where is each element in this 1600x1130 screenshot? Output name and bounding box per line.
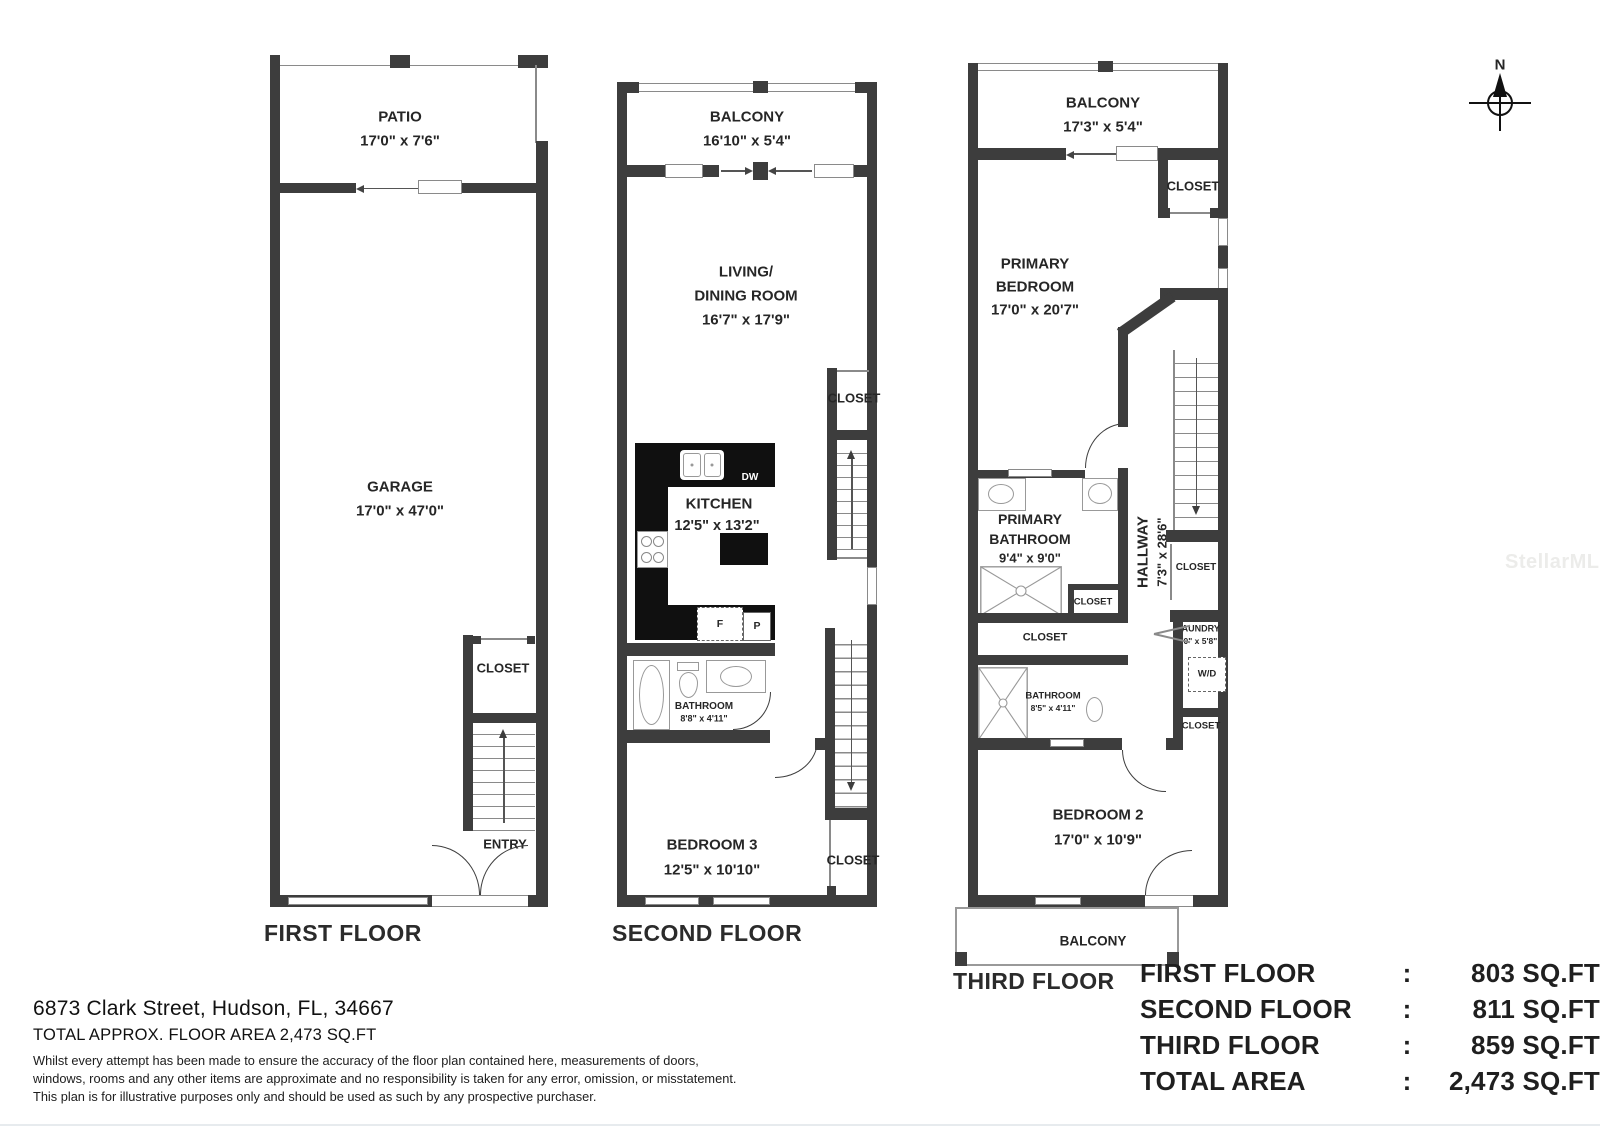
wall bbox=[968, 613, 1128, 623]
room-label-closet-top: CLOSET bbox=[1167, 180, 1220, 193]
area-summary-table: FIRST FLOOR : 803 SQ.FT SECOND FLOOR : 8… bbox=[1140, 958, 1600, 1097]
room-dims-garage: 17'0" x 47'0" bbox=[356, 504, 444, 519]
balcony-railing bbox=[617, 83, 877, 92]
bottom-divider bbox=[0, 1124, 1600, 1126]
room-label-bathroom: BATHROOM bbox=[675, 702, 733, 712]
burner bbox=[653, 552, 664, 563]
tub-oval bbox=[639, 665, 664, 725]
sink-icon bbox=[988, 484, 1014, 504]
door-arc bbox=[1122, 750, 1166, 792]
slide-arrow-line bbox=[776, 170, 812, 172]
disclaimer: Whilst every attempt has been made to en… bbox=[33, 1052, 736, 1106]
room-dims-balcony-top: 17'3" x 5'4" bbox=[1063, 120, 1143, 135]
pocket-door bbox=[1050, 739, 1084, 747]
room-label-bedroom2: BEDROOM 2 bbox=[1053, 808, 1144, 823]
wall bbox=[1183, 708, 1228, 717]
window bbox=[1035, 897, 1081, 905]
wall bbox=[463, 635, 473, 831]
compass-north-arrow-icon bbox=[1493, 73, 1507, 97]
summary-label: FIRST FLOOR bbox=[1140, 958, 1392, 989]
bathtub-icon bbox=[633, 660, 670, 730]
summary-value: 2,473 SQ.FT bbox=[1422, 1066, 1600, 1097]
garage-door bbox=[288, 897, 428, 905]
caption-first-floor: FIRST FLOOR bbox=[264, 920, 422, 947]
wall bbox=[1098, 61, 1113, 72]
room-label-living: LIVING/ bbox=[719, 265, 773, 280]
door-arc bbox=[733, 692, 771, 730]
wall bbox=[815, 738, 825, 750]
wall bbox=[1158, 208, 1170, 218]
toilet-icon bbox=[677, 662, 699, 671]
dishwasher-label: DW bbox=[742, 473, 759, 483]
wall bbox=[978, 148, 1066, 160]
burner bbox=[641, 536, 652, 547]
stair-down-arrow-icon bbox=[847, 782, 855, 791]
disclaimer-line: Whilst every attempt has been made to en… bbox=[33, 1052, 736, 1070]
wall bbox=[270, 55, 280, 907]
burner bbox=[641, 552, 652, 563]
caption-third-floor: THIRD FLOOR bbox=[953, 968, 1115, 995]
footer-block: 6873 Clark Street, Hudson, FL, 34667 TOT… bbox=[33, 997, 736, 1106]
stair-up-arrow-icon bbox=[847, 450, 855, 459]
room-label-patio: PATIO bbox=[378, 110, 422, 125]
room-dims-living: 16'7" x 17'9" bbox=[702, 313, 790, 328]
room-dims-bathroom3: 8'5" x 4'11" bbox=[1031, 704, 1076, 713]
room-label-closet-stairs: CLOSET bbox=[1176, 563, 1217, 573]
disclaimer-line: windows, rooms and any other items are a… bbox=[33, 1070, 736, 1088]
wall bbox=[968, 655, 1128, 665]
sink-icon bbox=[720, 666, 752, 687]
second-floor-plan: BALCONY 16'10" x 5'4" LIVING/ DINING ROO… bbox=[617, 80, 877, 907]
room-dims-balcony: 16'10" x 5'4" bbox=[703, 134, 791, 149]
wall bbox=[869, 368, 877, 376]
toilet-bowl bbox=[679, 672, 698, 698]
window bbox=[814, 164, 854, 178]
property-address: 6873 Clark Street, Hudson, FL, 34667 bbox=[33, 997, 736, 1021]
slide-arrow-icon bbox=[356, 185, 364, 193]
pocket-door bbox=[1008, 469, 1052, 477]
fridge-label: F bbox=[717, 619, 723, 630]
summary-separator: : bbox=[1392, 1066, 1422, 1097]
shower-icon bbox=[980, 566, 1062, 616]
room-label-closet-upper: CLOSET bbox=[828, 392, 881, 405]
wall bbox=[280, 183, 356, 193]
wall bbox=[463, 713, 536, 723]
room-label-closet-lower: CLOSET bbox=[827, 854, 880, 867]
door-arc bbox=[1145, 850, 1192, 895]
summary-separator: : bbox=[1392, 1030, 1422, 1061]
sink-basin bbox=[704, 453, 722, 477]
slide-arrow-line bbox=[364, 188, 418, 190]
floor-plan-sheet: PATIO 17'0" x 7'6" GARAGE 17'0" x 47'0" … bbox=[0, 0, 1600, 1130]
wall bbox=[390, 55, 410, 68]
wall bbox=[1210, 208, 1218, 218]
stair-edge bbox=[1173, 350, 1175, 532]
wall bbox=[473, 636, 481, 644]
third-floor-plan: BALCONY 17'3" x 5'4" CLOSET PRIMARY BEDR… bbox=[952, 60, 1228, 972]
room-dims-bathroom: 8'8" x 4'11" bbox=[680, 715, 727, 724]
wall bbox=[627, 165, 665, 177]
summary-label: SECOND FLOOR bbox=[1140, 994, 1392, 1025]
wall bbox=[703, 165, 719, 177]
burner bbox=[653, 536, 664, 547]
slide-arrow-icon bbox=[1066, 151, 1074, 159]
room-label-bathroom3: BATHROOM bbox=[1025, 691, 1080, 701]
room-dims-primary-bedroom: 17'0" x 20'7" bbox=[991, 303, 1079, 318]
total-area-line: TOTAL APPROX. FLOOR AREA 2,473 SQ.FT bbox=[33, 1026, 736, 1045]
room-label-closet-lower: CLOSET bbox=[1182, 721, 1221, 731]
stair-rail bbox=[851, 459, 853, 549]
wall bbox=[825, 808, 877, 820]
wall bbox=[753, 162, 768, 180]
patio-edge bbox=[535, 65, 537, 143]
wall bbox=[867, 83, 877, 907]
room-dims-hallway: 7'3" x 28'6" bbox=[1156, 517, 1169, 586]
room-label-kitchen: KITCHEN bbox=[686, 497, 753, 512]
room-label-balcony-top: BALCONY bbox=[1066, 96, 1140, 111]
summary-separator: : bbox=[1392, 994, 1422, 1025]
stair-edge bbox=[837, 557, 867, 559]
room-dims-bedroom3: 12'5" x 10'10" bbox=[664, 863, 760, 878]
slide-arrow-icon bbox=[745, 167, 753, 175]
room-label-closet: CLOSET bbox=[477, 662, 530, 675]
wall bbox=[1068, 584, 1118, 590]
door-arc bbox=[432, 845, 480, 895]
closet-divider bbox=[1170, 544, 1172, 600]
washer-dryer-label: W/D bbox=[1198, 669, 1216, 679]
room-dims-primary-bathroom: 9'4" x 9'0" bbox=[999, 552, 1061, 565]
kitchen-sink-icon bbox=[680, 450, 724, 480]
slide-arrow-line bbox=[1074, 153, 1116, 155]
slide-arrow-icon bbox=[768, 167, 776, 175]
toilet-icon bbox=[1086, 697, 1103, 722]
wall bbox=[536, 141, 548, 907]
room-label-primary-bedroom: PRIMARY bbox=[1001, 257, 1070, 272]
disclaimer-line: This plan is for illustrative purposes o… bbox=[33, 1088, 736, 1106]
room-label-hallway: HALLWAY bbox=[1136, 516, 1151, 588]
door-arc bbox=[480, 845, 528, 895]
sliding-door-panel bbox=[418, 180, 462, 194]
wall bbox=[1166, 530, 1218, 542]
wall bbox=[1118, 327, 1128, 427]
closet-opening bbox=[473, 638, 535, 640]
wall bbox=[854, 165, 867, 177]
room-label-closet-inner: CLOSET bbox=[1074, 597, 1113, 607]
summary-value: 859 SQ.FT bbox=[1422, 1030, 1600, 1061]
stair-rail bbox=[1196, 358, 1198, 506]
balcony-door-opening bbox=[1145, 895, 1193, 907]
window bbox=[867, 567, 877, 605]
shower-icon bbox=[978, 667, 1028, 740]
room-dims-kitchen: 12'5" x 13'2" bbox=[674, 519, 759, 534]
sliding-door-panel bbox=[1116, 146, 1158, 161]
door-arc bbox=[775, 740, 818, 778]
wall bbox=[753, 81, 768, 93]
room-label-balcony: BALCONY bbox=[710, 110, 784, 125]
sink-icon bbox=[1088, 483, 1112, 504]
compass-north-label: N bbox=[1495, 58, 1506, 73]
wall bbox=[968, 63, 978, 907]
wall bbox=[825, 628, 835, 820]
room-dims-bedroom2: 17'0" x 10'9" bbox=[1054, 833, 1142, 848]
summary-value: 803 SQ.FT bbox=[1422, 958, 1600, 989]
window bbox=[665, 164, 703, 178]
room-label-garage: GARAGE bbox=[367, 480, 433, 495]
wall bbox=[1118, 468, 1128, 620]
wall bbox=[518, 55, 548, 68]
stair-rail bbox=[851, 640, 853, 784]
wall bbox=[1170, 610, 1228, 622]
room-label-primary-bathroom2: BATHROOM bbox=[989, 532, 1070, 546]
room-label-primary-bedroom2: BEDROOM bbox=[996, 280, 1074, 295]
first-floor-plan: PATIO 17'0" x 7'6" GARAGE 17'0" x 47'0" … bbox=[270, 53, 548, 907]
wall bbox=[627, 730, 770, 743]
entry-door-opening bbox=[432, 895, 528, 907]
stair-up-arrow-icon bbox=[499, 729, 507, 738]
window bbox=[645, 897, 699, 905]
kitchen-island bbox=[720, 533, 768, 565]
stove-icon bbox=[637, 531, 668, 568]
wall bbox=[955, 952, 967, 966]
caption-second-floor: SECOND FLOOR bbox=[612, 920, 802, 947]
stair-down-arrow-icon bbox=[1192, 506, 1200, 515]
wall bbox=[827, 430, 877, 440]
watermark: StellarMLS bbox=[1505, 551, 1600, 574]
pantry-label: P bbox=[753, 621, 760, 632]
room-label-living2: DINING ROOM bbox=[694, 289, 797, 304]
summary-value: 811 SQ.FT bbox=[1422, 994, 1600, 1025]
room-label-closet-mid: CLOSET bbox=[1023, 633, 1068, 644]
wall bbox=[617, 83, 627, 907]
room-label-balcony-bottom: BALCONY bbox=[1060, 934, 1127, 948]
room-label-primary-bathroom: PRIMARY bbox=[998, 512, 1062, 526]
summary-label: TOTAL AREA bbox=[1140, 1066, 1392, 1097]
sink-basin bbox=[683, 453, 701, 477]
wall bbox=[462, 183, 536, 193]
slide-arrow-line bbox=[721, 170, 745, 172]
window bbox=[1218, 218, 1228, 246]
wall bbox=[627, 643, 775, 656]
room-label-bedroom3: BEDROOM 3 bbox=[667, 838, 758, 853]
wall bbox=[968, 738, 1122, 750]
stair-rail bbox=[503, 738, 505, 823]
window bbox=[713, 897, 770, 905]
room-dims-patio: 17'0" x 7'6" bbox=[360, 134, 440, 149]
wall bbox=[527, 636, 535, 644]
summary-label: THIRD FLOOR bbox=[1140, 1030, 1392, 1061]
summary-separator: : bbox=[1392, 958, 1422, 989]
door-arc bbox=[1085, 423, 1126, 468]
wall bbox=[827, 886, 836, 895]
